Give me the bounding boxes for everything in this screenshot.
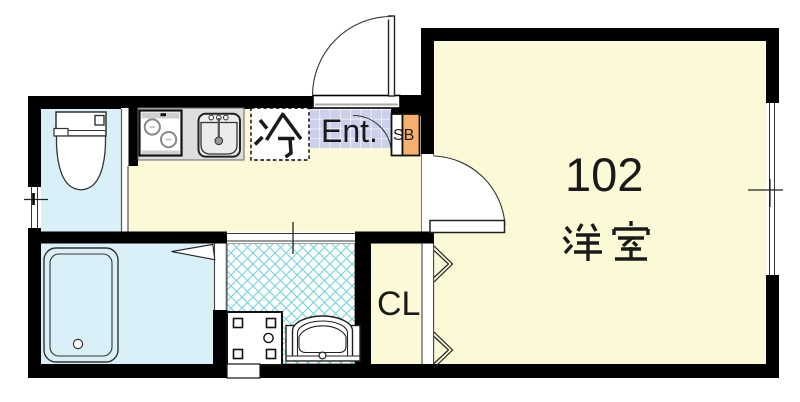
svg-text:CL: CL — [377, 285, 420, 323]
svg-text:SB: SB — [393, 127, 414, 144]
svg-text:102: 102 — [565, 148, 643, 201]
svg-text:Ent.: Ent. — [321, 113, 378, 149]
